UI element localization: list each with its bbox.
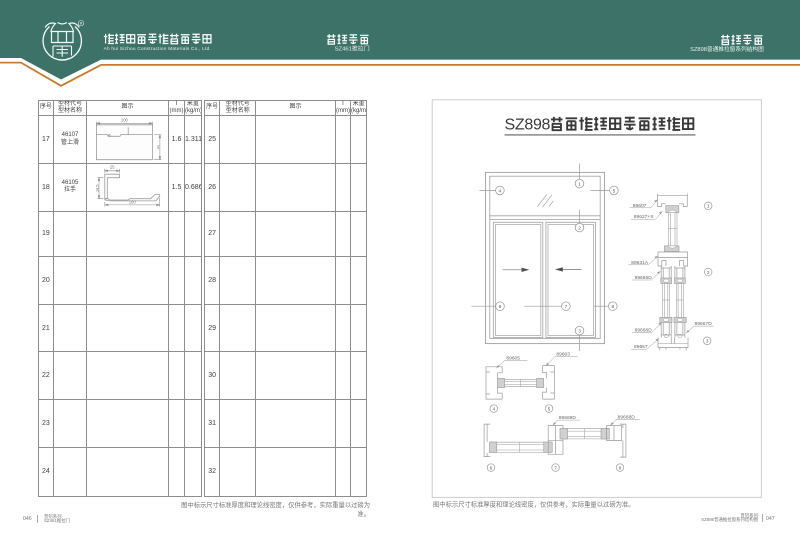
svg-text:7: 7 <box>565 304 568 309</box>
svg-text:44: 44 <box>156 145 160 149</box>
svg-text:4: 4 <box>499 188 502 193</box>
svg-text:28.5: 28.5 <box>95 185 99 192</box>
svg-text:SZ898: SZ898 <box>505 117 551 134</box>
svg-text:6: 6 <box>499 304 502 309</box>
svg-text:100: 100 <box>129 200 137 205</box>
svg-text:8: 8 <box>611 304 614 309</box>
svg-text:5: 5 <box>613 188 616 193</box>
svg-text:25: 25 <box>110 164 115 169</box>
svg-text:3: 3 <box>578 329 581 334</box>
svg-text:图中标示尺寸标准厚度和理论线密度，仅供参考，实际重量以过磅为: 图中标示尺寸标准厚度和理论线密度，仅供参考，实际重量以过磅为准。 <box>433 500 635 509</box>
svg-text:100: 100 <box>121 118 129 123</box>
svg-text:1: 1 <box>578 182 581 187</box>
svg-text:2: 2 <box>578 226 581 231</box>
